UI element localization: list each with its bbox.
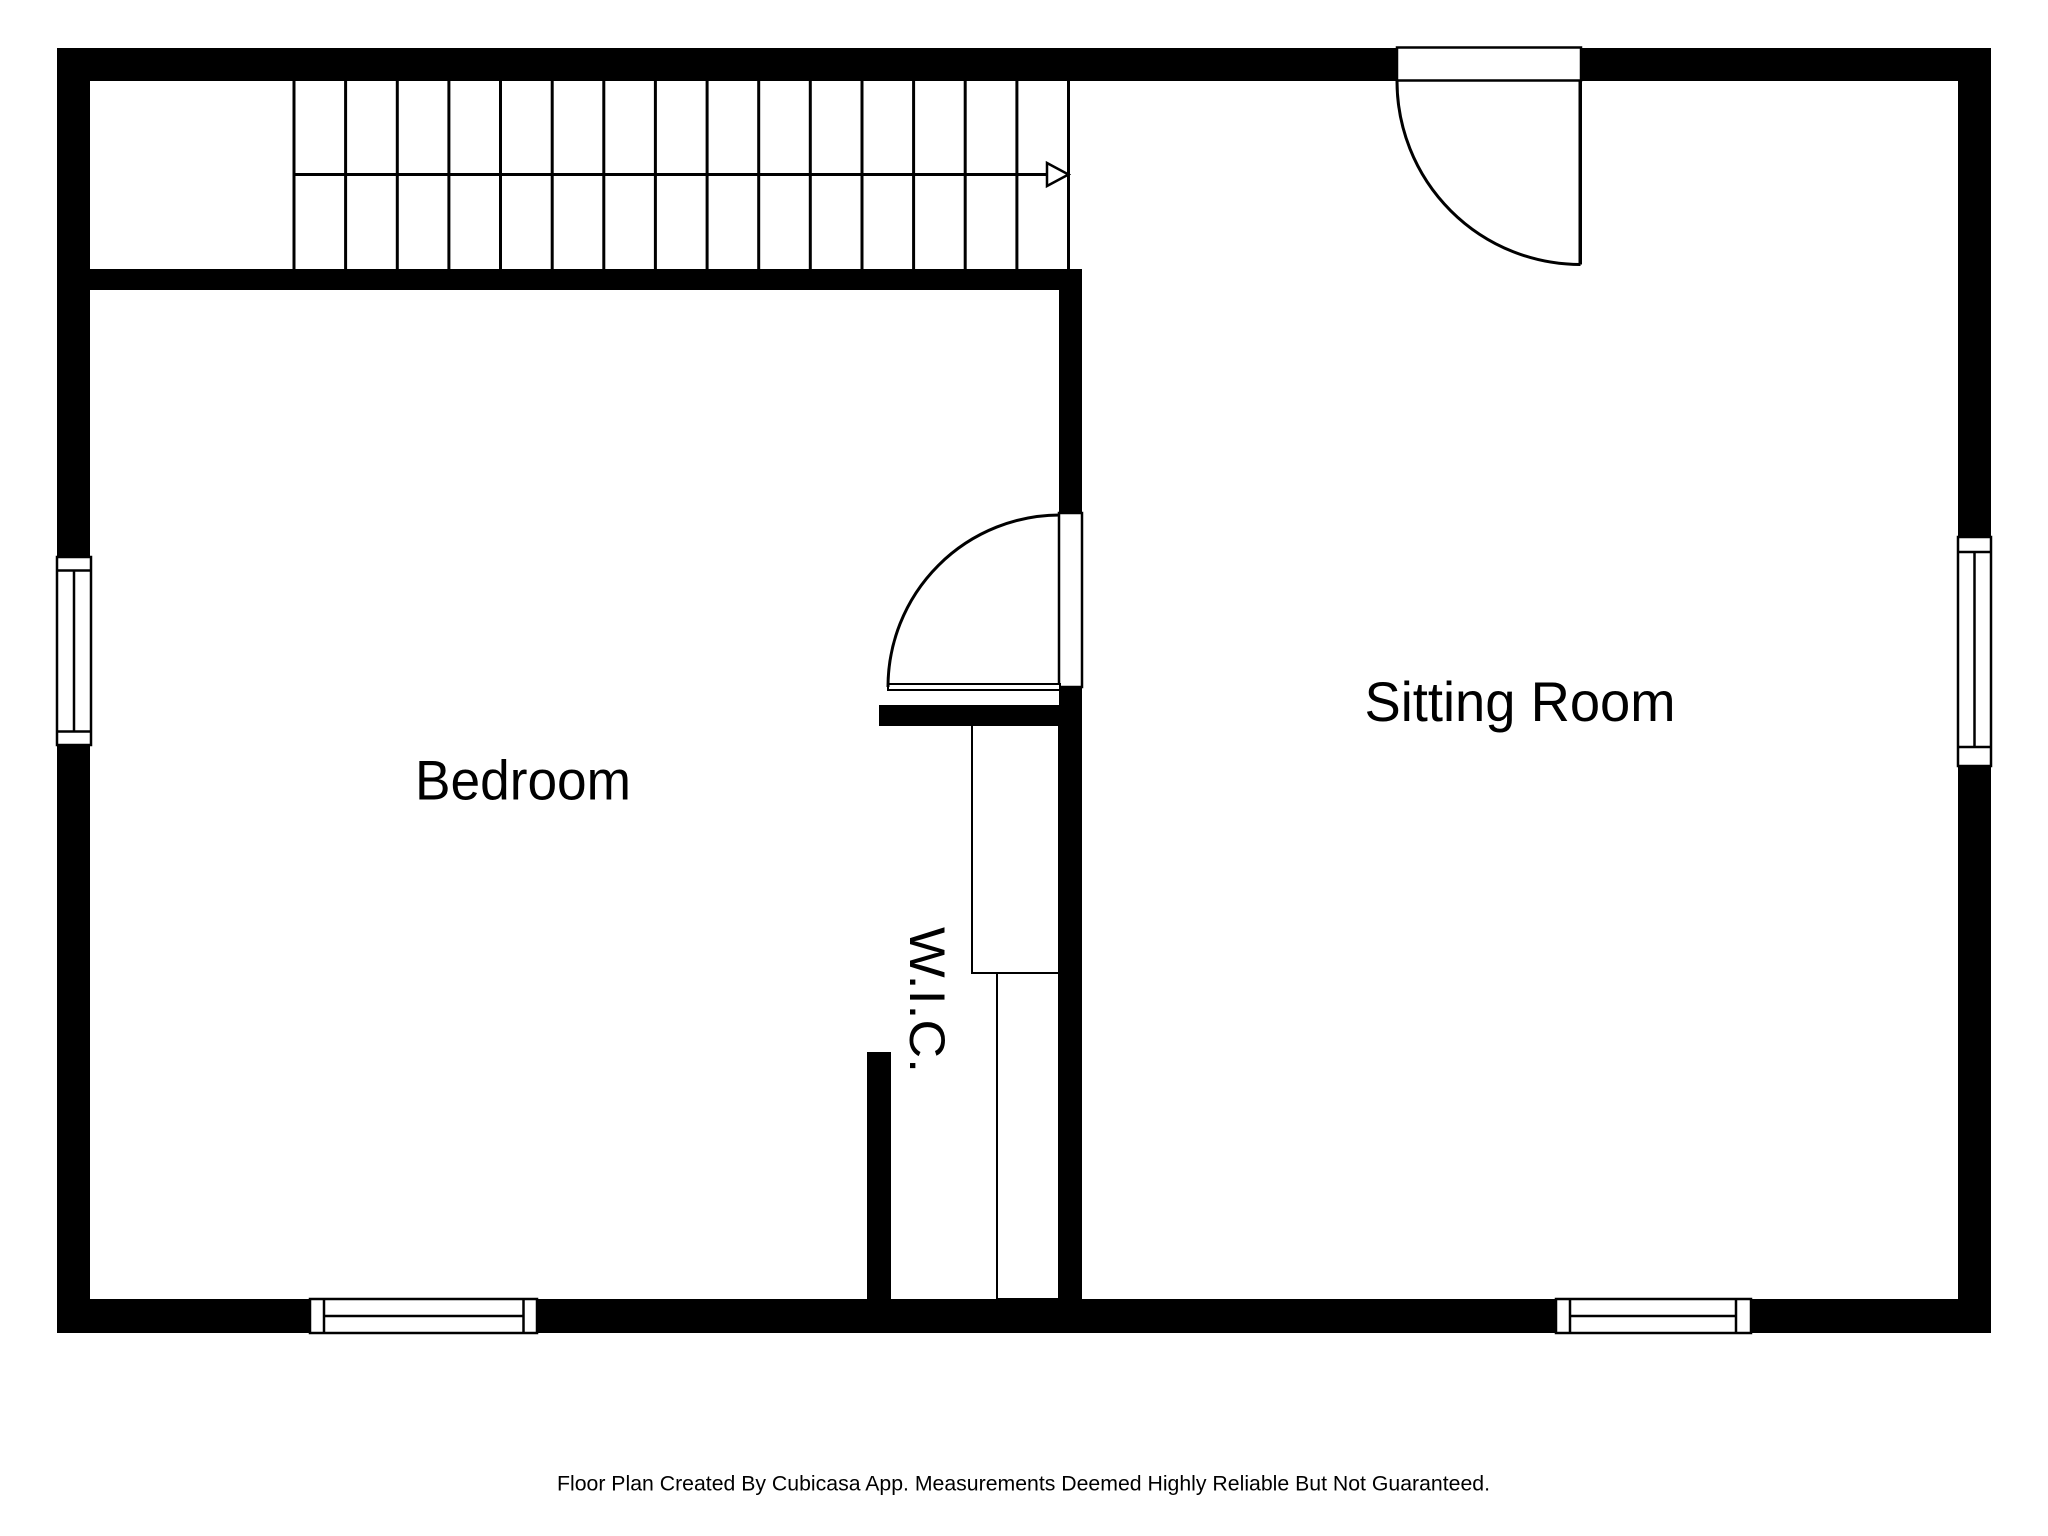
svg-text:Bedroom: Bedroom	[415, 749, 631, 812]
svg-text:W.I.C.: W.I.C.	[899, 927, 955, 1073]
svg-text:Floor Plan Created By Cubicasa: Floor Plan Created By Cubicasa App. Meas…	[557, 1472, 1490, 1496]
svg-text:Sitting Room: Sitting Room	[1365, 670, 1676, 733]
